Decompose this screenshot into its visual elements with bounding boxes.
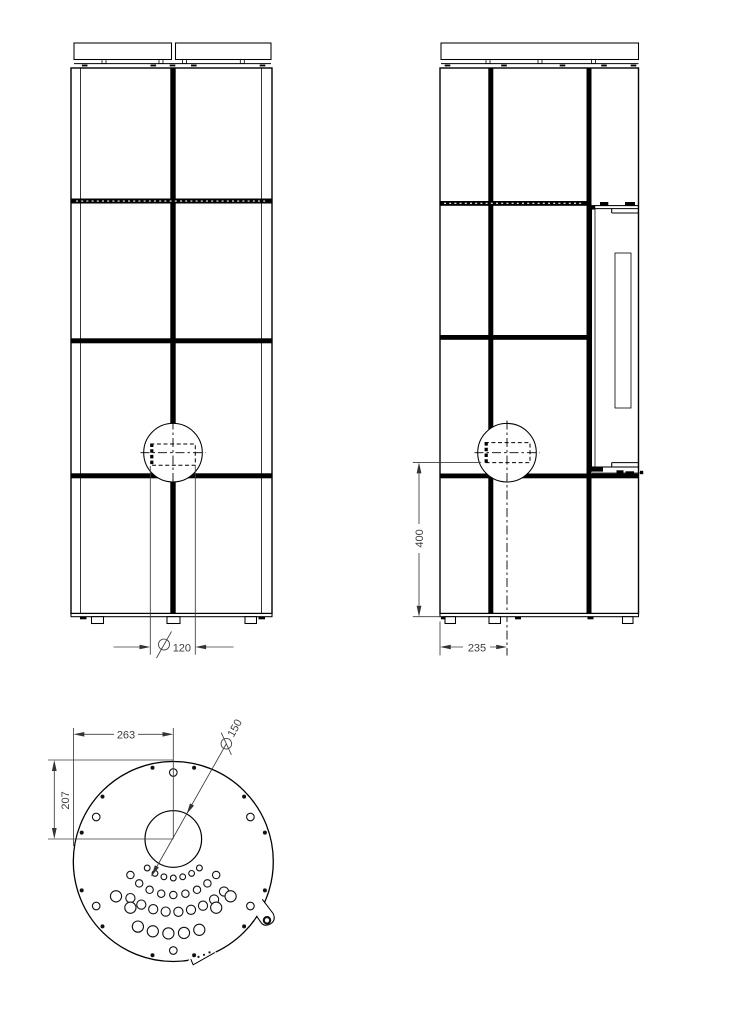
tile-joint-2 [71, 338, 272, 343]
screw-hole [92, 902, 100, 910]
air-hole [137, 900, 146, 909]
drawing-page: 120 400 235 263 [0, 0, 735, 1010]
dim-text-flue-height: 400 [414, 529, 426, 547]
dim-text-flue-front: 120 [173, 643, 191, 655]
side-elevation-view [440, 43, 643, 656]
air-hole [127, 871, 134, 878]
door-hinge-bottom [591, 467, 603, 472]
air-hole [158, 890, 165, 897]
air-hole [170, 891, 177, 898]
top-cap-side [441, 43, 639, 60]
screw-hole [247, 902, 255, 910]
pin-hole [263, 831, 267, 835]
air-hole [204, 880, 211, 887]
air-hole [180, 874, 186, 880]
diameter-symbol: 150 [214, 715, 248, 755]
air-hole [149, 905, 158, 914]
air-hole [170, 875, 176, 881]
air-hole [198, 901, 207, 910]
pin-hole [101, 924, 105, 928]
pin-hole [263, 888, 267, 892]
air-hole [163, 928, 174, 939]
air-hole [161, 874, 167, 880]
screw-hole [92, 813, 100, 821]
pin-hole [101, 795, 105, 799]
air-hole [189, 871, 195, 877]
air-hole [174, 907, 183, 916]
air-hole [125, 902, 136, 913]
door-hinge-top [600, 202, 608, 206]
door-latch-pin [640, 471, 643, 474]
air-hole [132, 921, 143, 932]
pin-hole [80, 831, 84, 835]
foot [167, 617, 180, 624]
air-hole [211, 902, 222, 913]
door-column-joint [587, 68, 592, 614]
air-hole [144, 865, 150, 871]
notch-pin-hole [197, 956, 199, 958]
air-hole [182, 890, 189, 897]
air-hole [178, 927, 189, 938]
dim-flue-offset: 235 [440, 622, 507, 656]
pin-hole [192, 953, 196, 957]
air-hole [193, 886, 200, 893]
air-hole [146, 886, 153, 893]
technical-drawing: 120 400 235 263 [0, 0, 735, 1010]
foot [245, 617, 257, 624]
air-hole [197, 865, 203, 871]
dim-text-flue-plan: 150 [226, 717, 245, 739]
dim-text-flue-offset: 235 [468, 642, 486, 654]
notch-pin-hole [208, 951, 210, 953]
tile-joint-side-3 [440, 474, 639, 479]
air-hole [194, 924, 205, 935]
base-plate-side [440, 614, 639, 617]
door-profile [591, 202, 643, 474]
dim-flue-height: 400 [413, 462, 481, 616]
pin-hole [151, 766, 155, 770]
air-hole [213, 871, 220, 878]
pin-hole [242, 924, 246, 928]
air-hole [126, 894, 135, 903]
pin-hole [80, 888, 84, 892]
dim-text-plan-width: 263 [117, 730, 135, 742]
tile-joint-side-2 [440, 335, 587, 340]
top-cap-left [74, 43, 172, 60]
pin-hole [151, 953, 155, 957]
air-hole [147, 926, 158, 937]
pin-hole [242, 795, 246, 799]
air-hole [136, 880, 143, 887]
top-cap-right [176, 43, 272, 60]
door-hinge-top [625, 202, 635, 206]
front-elevation-view [71, 43, 272, 624]
air-hole [225, 891, 236, 902]
air-hole [110, 891, 121, 902]
dim-text-plan-depth: 207 [60, 791, 72, 809]
air-hole [186, 905, 195, 914]
foot [623, 617, 634, 624]
screw-hole [247, 813, 255, 821]
base-plan-view [73, 762, 276, 967]
notch-pin-hole [203, 954, 205, 956]
air-hole [161, 907, 170, 916]
foot [92, 617, 104, 624]
pin-hole [192, 766, 196, 770]
foot [489, 617, 501, 624]
screw-hole [170, 947, 178, 955]
diameter-symbol [157, 632, 172, 659]
foot [445, 617, 456, 624]
tile-joint-vertical-side [488, 68, 493, 614]
